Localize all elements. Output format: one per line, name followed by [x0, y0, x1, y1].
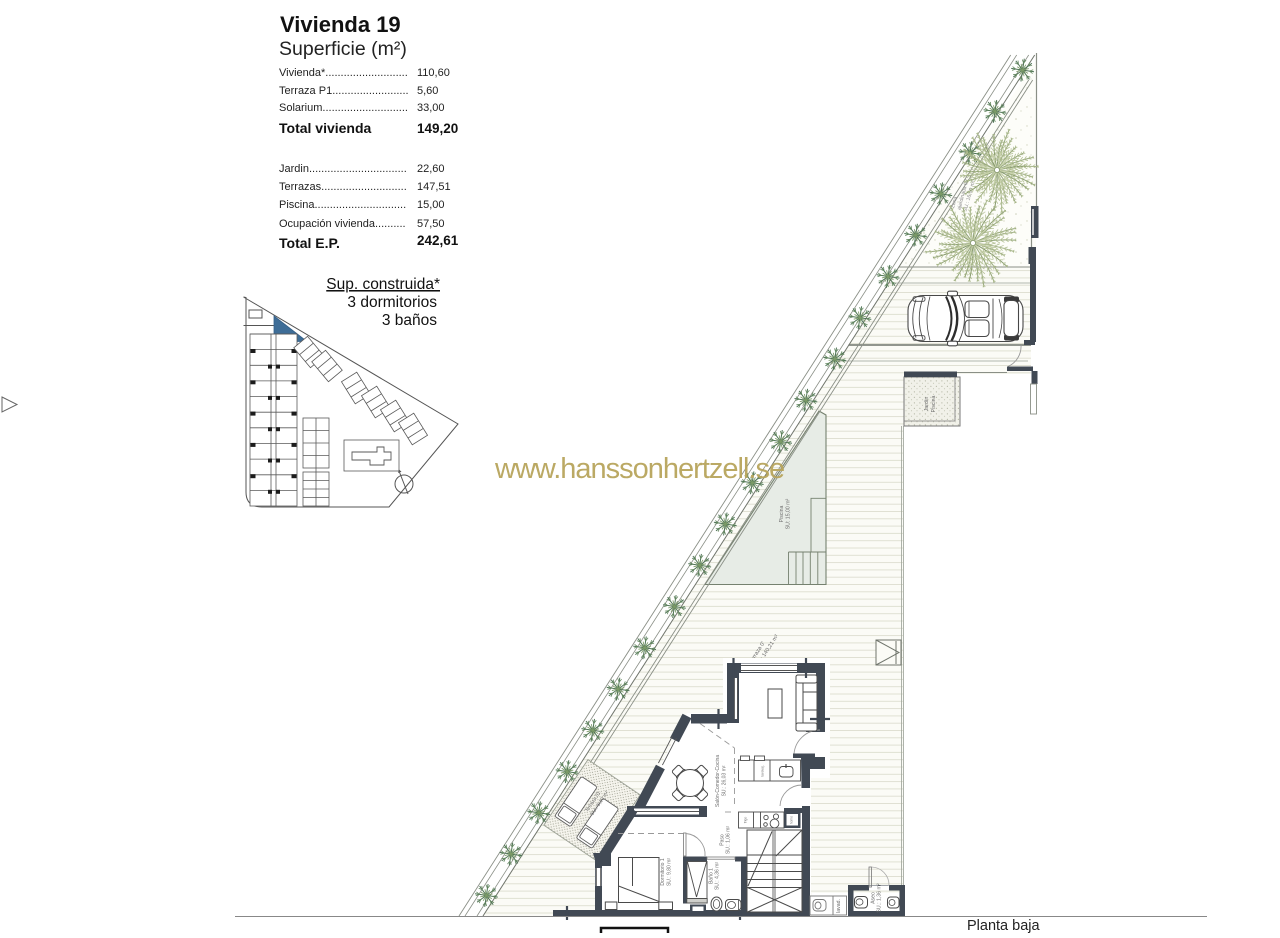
svg-text:lavad.: lavad.: [836, 899, 842, 913]
svg-text:Superficie (m²): Superficie (m²): [279, 38, 407, 60]
svg-text:147,51: 147,51: [417, 181, 451, 193]
svg-text:Vivienda 19: Vivienda 19: [280, 12, 401, 37]
svg-text:Planta baja: Planta baja: [967, 918, 1040, 933]
svg-text:149,20: 149,20: [417, 121, 458, 136]
svg-text:lavavaj.: lavavaj.: [761, 765, 765, 777]
svg-text:Ocupación vivienda..........: Ocupación vivienda..........: [279, 218, 406, 230]
svg-text:15,00: 15,00: [417, 199, 445, 211]
svg-text:Piscina.......................: Piscina..............................: [279, 199, 406, 211]
svg-text:Sup. construida*: Sup. construida*: [326, 276, 440, 293]
svg-text:Dormitorio 1: Dormitorio 1: [660, 858, 666, 885]
svg-text:33,00: 33,00: [417, 102, 445, 114]
svg-text:SU.: 26,03 m²: SU.: 26,03 m²: [722, 765, 728, 796]
svg-text:3 dormitorios: 3 dormitorios: [347, 294, 437, 311]
svg-text:SU.: 4,36 m²: SU.: 4,36 m²: [715, 862, 721, 890]
svg-text:www.hanssonhertzell.se: www.hanssonhertzell.se: [494, 453, 784, 485]
svg-text:Vivienda*.....................: Vivienda*...........................: [279, 67, 408, 79]
svg-text:Total E.P.: Total E.P.: [279, 235, 340, 251]
svg-text:3 baños: 3 baños: [382, 312, 437, 329]
svg-text:110,60: 110,60: [417, 67, 450, 79]
svg-text:Terrazas......................: Terrazas............................: [279, 181, 407, 193]
svg-text:frigo: frigo: [744, 817, 748, 824]
svg-text:Jardín: Jardín: [924, 397, 930, 412]
svg-text:Piscina: Piscina: [779, 506, 785, 523]
svg-text:SU.: 1,06 m²: SU.: 1,06 m²: [726, 826, 732, 854]
svg-text:57,50: 57,50: [417, 218, 445, 230]
svg-text:Total vivienda: Total vivienda: [279, 120, 372, 136]
svg-text:SU.: 9,80 m²: SU.: 9,80 m²: [667, 858, 673, 886]
svg-text:Salón-Comedor-Cocina: Salón-Comedor-Cocina: [715, 755, 721, 807]
svg-text:22,60: 22,60: [417, 163, 445, 175]
svg-text:Jardin........................: Jardin................................: [279, 163, 407, 175]
svg-text:SU: 15,00 m²: SU: 15,00 m²: [786, 498, 792, 529]
svg-text:242,61: 242,61: [417, 233, 459, 248]
svg-text:Piscina: Piscina: [931, 396, 937, 413]
svg-text:5,60: 5,60: [417, 85, 438, 97]
svg-text:Terraza P1....................: Terraza P1.........................: [279, 85, 409, 97]
svg-text:horno: horno: [790, 816, 794, 824]
svg-text:SU.: 1,36 m²: SU.: 1,36 m²: [877, 883, 883, 912]
svg-text:Solarium......................: Solarium............................: [279, 102, 408, 114]
